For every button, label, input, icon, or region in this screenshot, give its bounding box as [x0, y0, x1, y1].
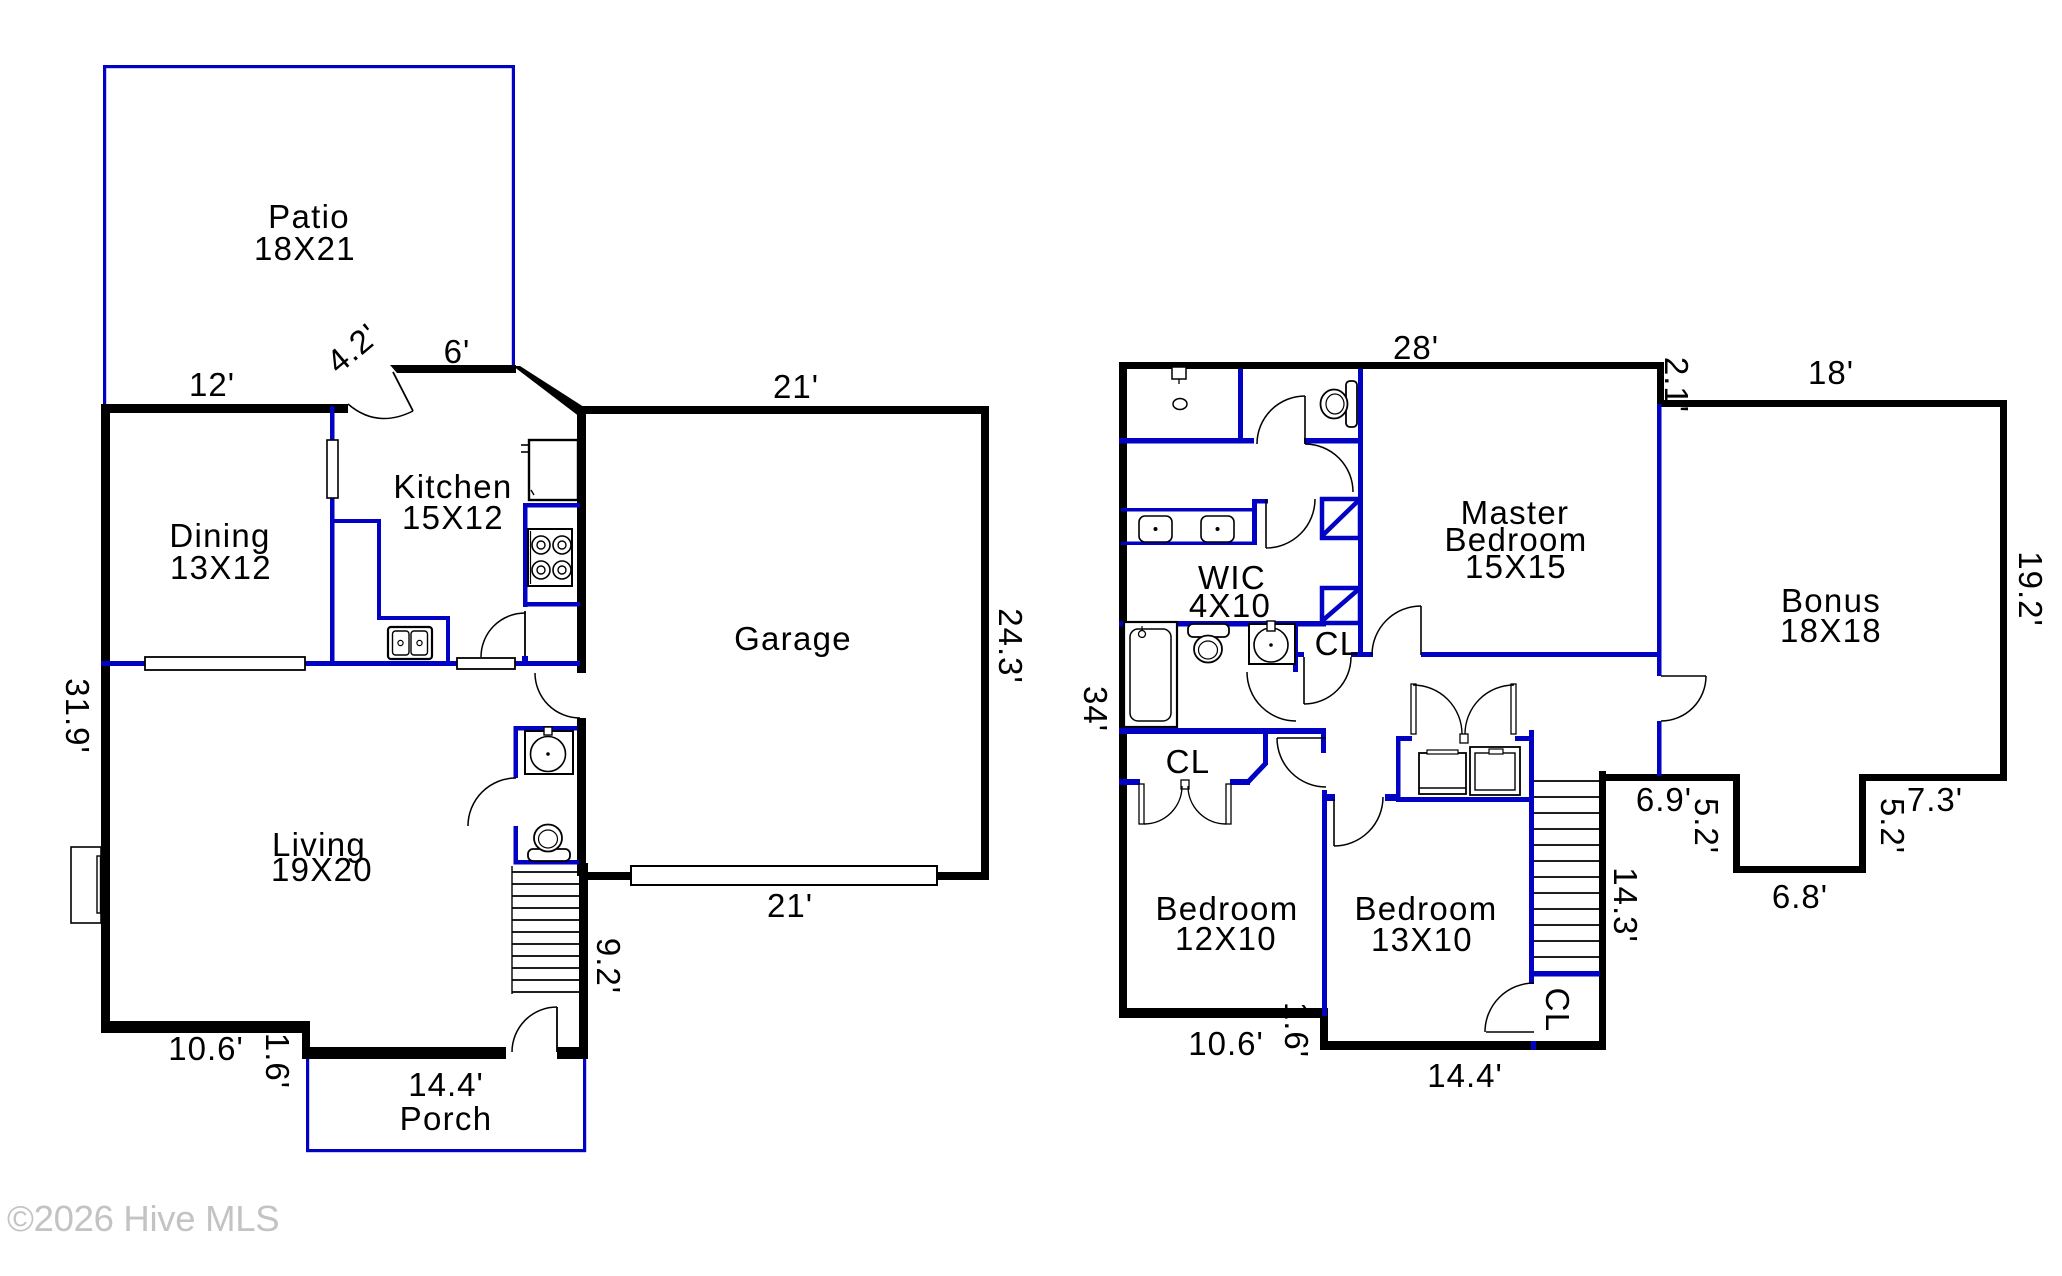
svg-text:6': 6'	[444, 333, 471, 370]
svg-text:14.4': 14.4'	[408, 1066, 484, 1103]
svg-text:Garage: Garage	[734, 620, 852, 657]
svg-text:1.6': 1.6'	[1278, 1002, 1315, 1058]
svg-text:Porch: Porch	[400, 1100, 493, 1137]
svg-text:5.2': 5.2'	[1688, 798, 1725, 854]
svg-text:18X18: 18X18	[1780, 612, 1882, 649]
svg-text:4X10: 4X10	[1189, 587, 1271, 624]
svg-text:CL: CL	[1166, 743, 1211, 780]
svg-text:18': 18'	[1808, 354, 1854, 391]
svg-text:24.3': 24.3'	[992, 608, 1029, 684]
svg-text:31.9': 31.9'	[59, 678, 96, 754]
svg-text:9.2': 9.2'	[590, 938, 627, 994]
svg-text:CL: CL	[1539, 988, 1576, 1033]
svg-text:5.2': 5.2'	[1874, 798, 1911, 854]
svg-text:14.4': 14.4'	[1427, 1057, 1503, 1094]
svg-text:10.6': 10.6'	[1188, 1025, 1264, 1062]
svg-text:15X12: 15X12	[402, 499, 504, 536]
svg-text:19X20: 19X20	[271, 851, 373, 888]
svg-text:CL: CL	[1315, 625, 1360, 662]
svg-text:2.1': 2.1'	[1658, 357, 1695, 413]
svg-text:13X10: 13X10	[1371, 921, 1473, 958]
svg-text:7.3': 7.3'	[1907, 781, 1963, 818]
svg-text:19.2': 19.2'	[2012, 551, 2049, 627]
svg-text:13X12: 13X12	[170, 549, 272, 586]
svg-text:21': 21'	[767, 887, 813, 924]
svg-text:1.6': 1.6'	[259, 1033, 296, 1089]
svg-text:12': 12'	[189, 366, 235, 403]
svg-text:14.3': 14.3'	[1607, 867, 1644, 943]
svg-text:15X15: 15X15	[1465, 548, 1567, 585]
svg-text:28': 28'	[1393, 329, 1439, 366]
svg-text:6.8': 6.8'	[1772, 878, 1828, 915]
svg-text:18X21: 18X21	[254, 230, 356, 267]
svg-text:34': 34'	[1077, 686, 1114, 732]
svg-text:©2026 Hive MLS: ©2026 Hive MLS	[7, 1198, 279, 1239]
svg-text:10.6': 10.6'	[168, 1030, 244, 1067]
svg-text:6.9': 6.9'	[1636, 781, 1692, 818]
svg-text:21': 21'	[773, 368, 819, 405]
svg-text:12X10: 12X10	[1175, 920, 1277, 957]
